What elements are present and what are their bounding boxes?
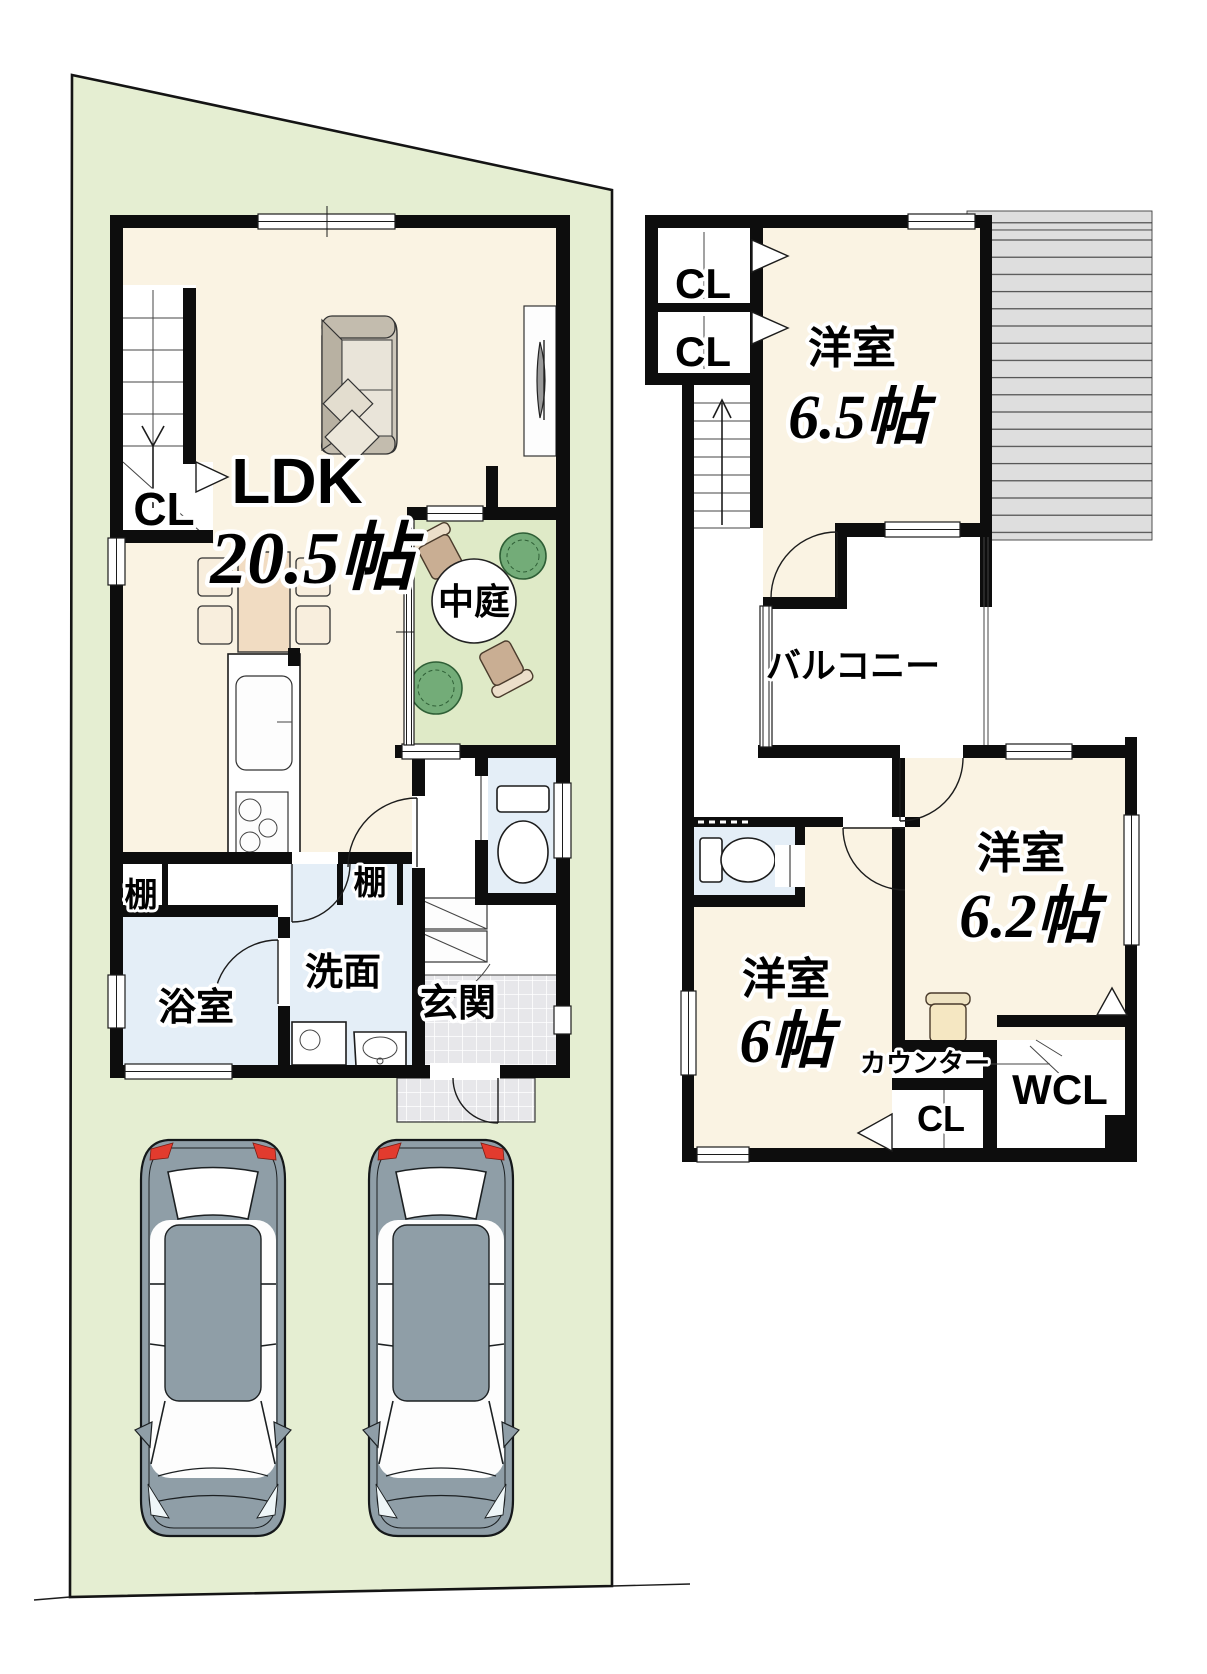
washer xyxy=(292,1022,346,1065)
label-cl1-2f: CL xyxy=(675,260,731,307)
label-shelf-right: 棚 xyxy=(354,864,387,901)
kitchen-counter xyxy=(228,654,300,860)
roof-hatch xyxy=(967,211,1152,540)
porch-step xyxy=(397,1078,535,1122)
label-room65-size: 6.5帖 xyxy=(788,384,937,452)
floor1-plan: LDK 20.5帖 CL 中庭 棚 棚 浴室 洗面 玄関 xyxy=(108,206,571,1123)
label-cl2-2f: CL xyxy=(675,328,731,375)
label-wcl: WCL xyxy=(1012,1066,1108,1113)
label-courtyard: 中庭 xyxy=(438,581,510,622)
label-room65: 洋室 xyxy=(808,323,896,373)
counter-chair xyxy=(926,993,970,1042)
label-ldk: LDK xyxy=(231,445,363,517)
car-right xyxy=(363,1140,519,1536)
label-counter: カウンター xyxy=(860,1048,990,1078)
label-bathroom: 浴室 xyxy=(158,986,234,1029)
sofa xyxy=(322,316,397,464)
label-shelf-left: 棚 xyxy=(125,876,158,913)
label-cl3-2f: CL xyxy=(917,1098,965,1139)
toilet2f-fixture xyxy=(700,838,775,882)
label-room62: 洋室 xyxy=(977,828,1065,878)
car-left xyxy=(135,1140,291,1536)
label-balcony: バルコニー xyxy=(766,647,940,686)
floor2-plan: CL CL 洋室 6.5帖 バルコニー 洋室 6帖 洋室 6.2帖 カウンター … xyxy=(645,211,1152,1162)
floorplan-drawing: LDK 20.5帖 CL 中庭 棚 棚 浴室 洗面 玄関 xyxy=(0,0,1207,1674)
kitchen-stove xyxy=(236,792,288,856)
label-room6-size: 6帖 xyxy=(739,1008,841,1076)
label-entrance: 玄関 xyxy=(420,983,496,1025)
label-cl-1f: CL xyxy=(133,483,194,535)
toilet1f-fixture xyxy=(497,786,549,883)
road-line-left xyxy=(34,1597,70,1600)
road-line-right xyxy=(612,1584,690,1586)
label-ldk-size: 20.5帖 xyxy=(209,518,425,600)
tv-board xyxy=(524,306,556,456)
label-room62-size: 6.2帖 xyxy=(959,883,1108,951)
label-washroom: 洗面 xyxy=(305,952,381,994)
floorplan-page: LDK 20.5帖 CL 中庭 棚 棚 浴室 洗面 玄関 xyxy=(0,0,1207,1674)
vanity-sink xyxy=(354,1032,406,1070)
label-room6: 洋室 xyxy=(742,954,830,1004)
kitchen-sink xyxy=(236,676,292,770)
